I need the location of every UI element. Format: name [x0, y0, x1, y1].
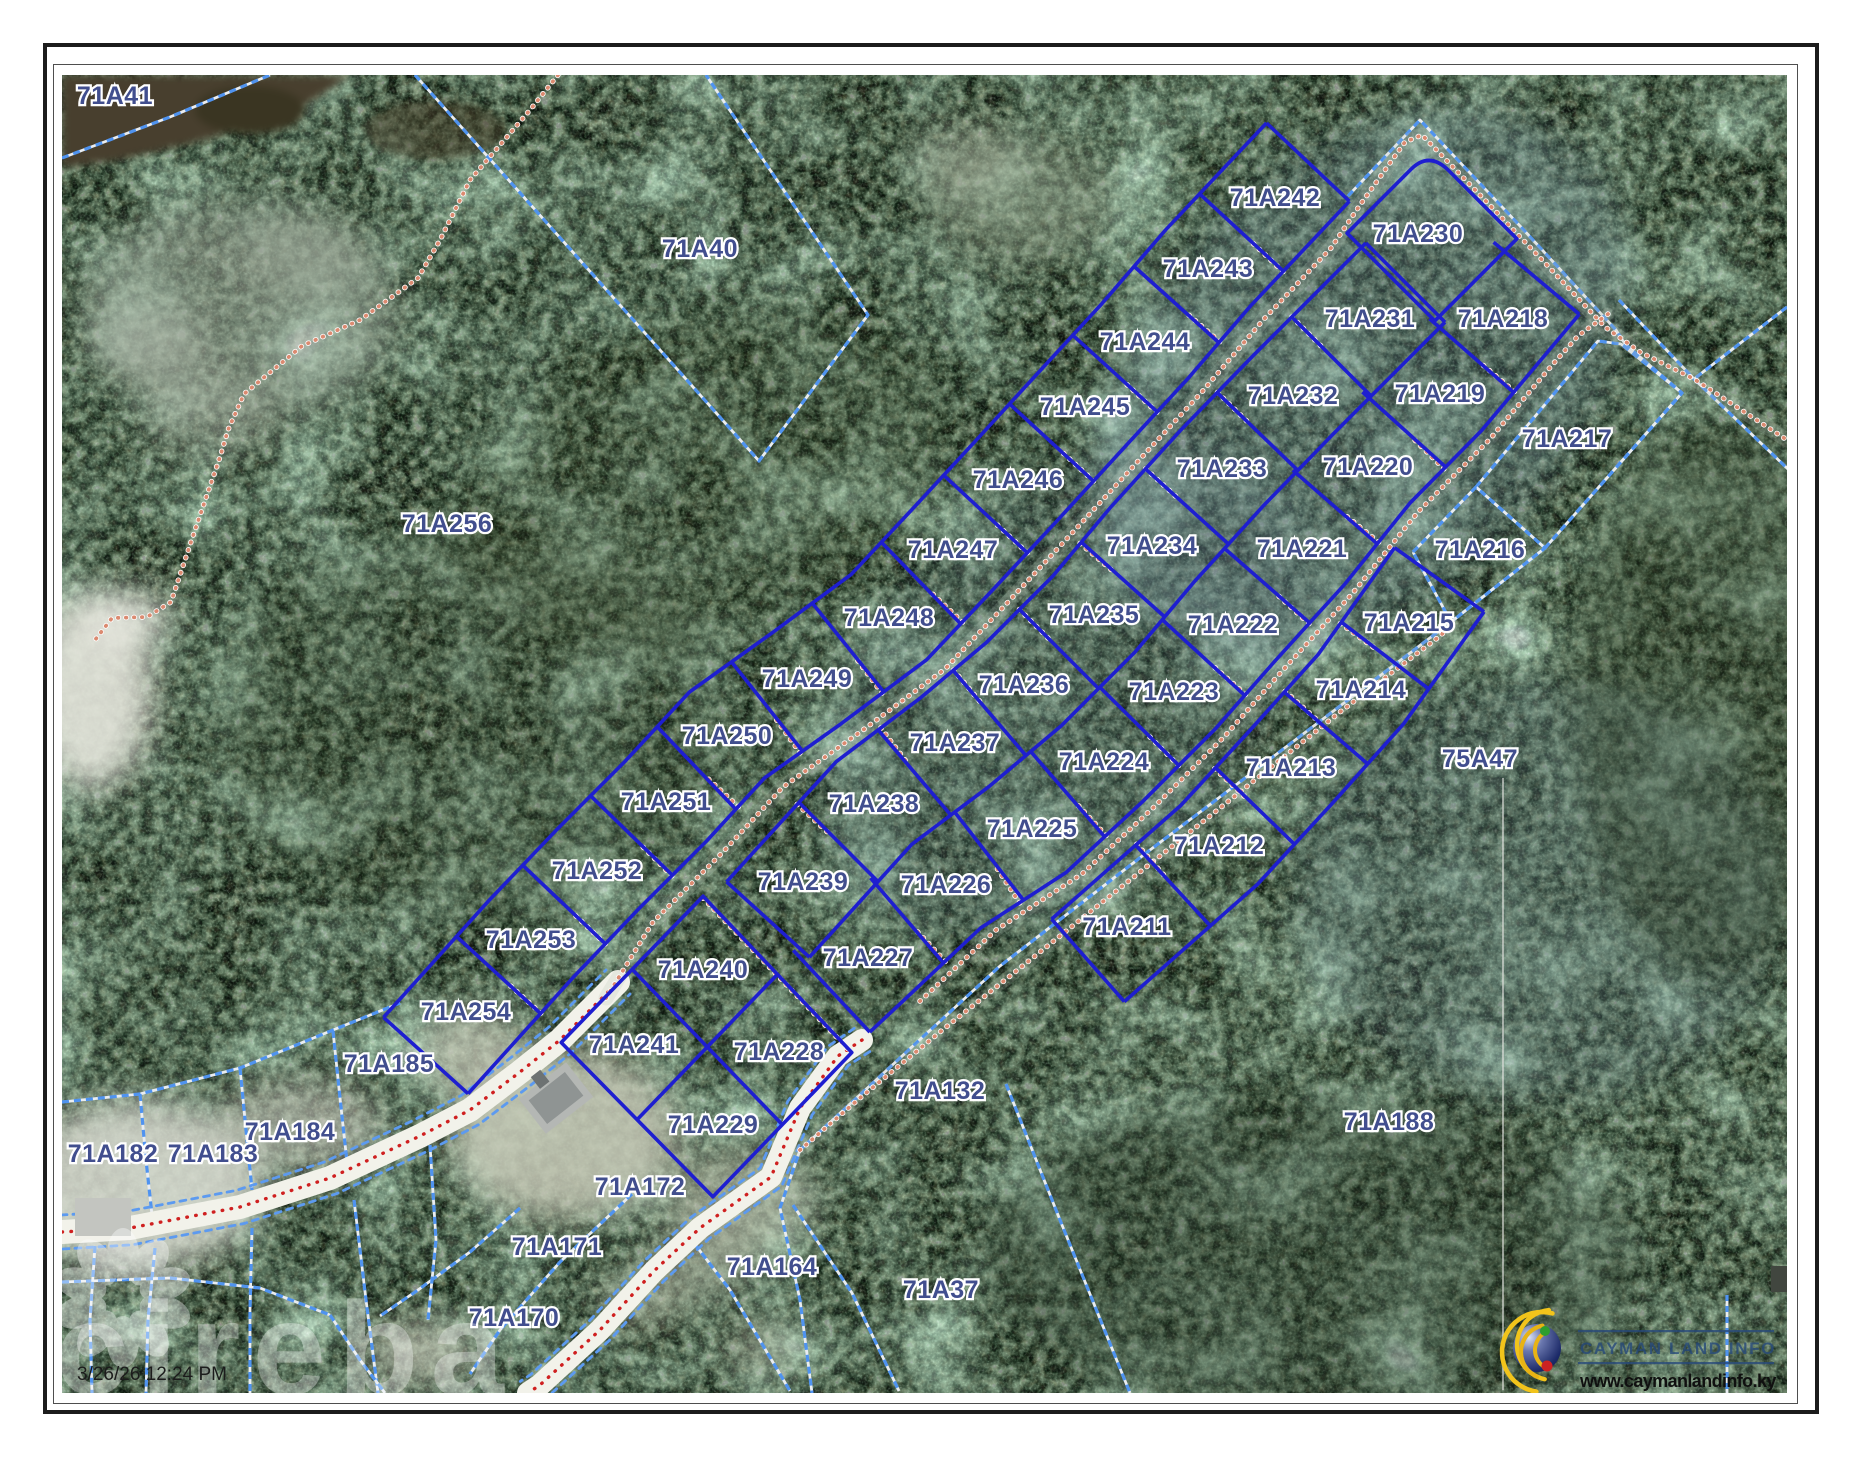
svg-text:71A252: 71A252	[552, 857, 643, 885]
svg-text:71A243: 71A243	[1163, 255, 1254, 283]
svg-text:71A164: 71A164	[727, 1253, 818, 1281]
svg-text:71A215: 71A215	[1364, 609, 1455, 637]
svg-text:71A241: 71A241	[589, 1031, 680, 1059]
svg-text:75A47: 75A47	[1442, 745, 1518, 773]
svg-text:71A221: 71A221	[1257, 535, 1348, 563]
svg-text:www.caymanlandinfo.ky: www.caymanlandinfo.ky	[1579, 1371, 1776, 1391]
svg-text:71A40: 71A40	[662, 235, 738, 263]
svg-text:71A239: 71A239	[758, 868, 849, 896]
svg-text:71A222: 71A222	[1188, 611, 1279, 639]
svg-text:71A232: 71A232	[1248, 382, 1339, 410]
svg-text:CAYMAN LAND INFO: CAYMAN LAND INFO	[1580, 1339, 1776, 1358]
svg-text:71A238: 71A238	[829, 790, 920, 818]
svg-text:71A228: 71A228	[734, 1038, 825, 1066]
svg-text:71A230: 71A230	[1373, 220, 1464, 248]
svg-text:71A182: 71A182	[68, 1140, 159, 1168]
svg-text:71A233: 71A233	[1177, 455, 1268, 483]
svg-text:71A225: 71A225	[987, 815, 1078, 843]
svg-text:71A253: 71A253	[486, 926, 577, 954]
svg-text:71A218: 71A218	[1458, 305, 1549, 333]
svg-text:71A231: 71A231	[1325, 305, 1416, 333]
svg-text:71A171: 71A171	[512, 1233, 603, 1261]
svg-text:71A226: 71A226	[901, 871, 992, 899]
svg-text:71A211: 71A211	[1082, 913, 1171, 941]
svg-text:71A183: 71A183	[168, 1140, 259, 1168]
svg-text:71A244: 71A244	[1100, 328, 1191, 356]
svg-text:71A214: 71A214	[1316, 676, 1407, 704]
svg-text:71A245: 71A245	[1040, 393, 1131, 421]
svg-text:71A249: 71A249	[762, 665, 853, 693]
svg-text:71A256: 71A256	[402, 510, 493, 538]
svg-text:71A132: 71A132	[895, 1077, 986, 1105]
svg-text:71A242: 71A242	[1230, 184, 1321, 212]
svg-text:71A172: 71A172	[595, 1173, 686, 1201]
svg-text:71A213: 71A213	[1246, 754, 1337, 782]
svg-text:71A227: 71A227	[823, 944, 914, 972]
svg-text:71A248: 71A248	[844, 604, 935, 632]
svg-text:71A237: 71A237	[910, 729, 1001, 757]
svg-text:71A217: 71A217	[1522, 425, 1613, 453]
svg-text:71A234: 71A234	[1107, 532, 1198, 560]
svg-text:71A188: 71A188	[1344, 1108, 1435, 1136]
svg-text:71A212: 71A212	[1174, 832, 1265, 860]
svg-text:71A224: 71A224	[1059, 748, 1150, 776]
svg-text:71A235: 71A235	[1049, 601, 1140, 629]
svg-text:71A240: 71A240	[658, 956, 749, 984]
svg-text:71A185: 71A185	[344, 1050, 435, 1078]
svg-text:71A250: 71A250	[682, 722, 773, 750]
svg-text:71A220: 71A220	[1323, 453, 1414, 481]
svg-text:3/26/26 12:24 PM: 3/26/26 12:24 PM	[77, 1364, 227, 1385]
svg-text:71A216: 71A216	[1435, 536, 1526, 564]
svg-text:71A254: 71A254	[421, 998, 512, 1026]
svg-text:71A236: 71A236	[979, 671, 1070, 699]
svg-text:71A223: 71A223	[1129, 678, 1220, 706]
svg-text:71A246: 71A246	[973, 466, 1064, 494]
svg-text:71A229: 71A229	[668, 1111, 759, 1139]
svg-text:71A251: 71A251	[621, 788, 712, 816]
svg-text:71A37: 71A37	[903, 1276, 979, 1304]
svg-text:71A219: 71A219	[1395, 380, 1486, 408]
svg-text:71A41: 71A41	[77, 82, 153, 110]
svg-text:71A184: 71A184	[245, 1118, 336, 1146]
svg-text:71A247: 71A247	[908, 536, 999, 564]
